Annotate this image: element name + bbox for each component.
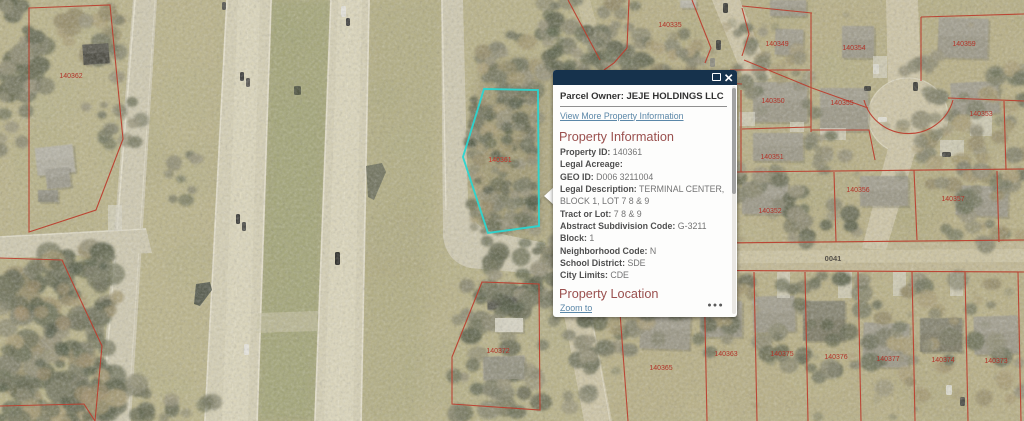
svg-text:140361: 140361: [488, 157, 511, 164]
svg-text:140362: 140362: [59, 73, 82, 80]
svg-text:140351: 140351: [760, 154, 783, 161]
svg-text:140372: 140372: [486, 348, 509, 355]
svg-text:140375: 140375: [770, 351, 793, 358]
svg-text:140356: 140356: [846, 187, 869, 194]
svg-text:140355: 140355: [830, 100, 853, 107]
svg-text:0041: 0041: [825, 254, 842, 263]
svg-text:140350: 140350: [761, 98, 784, 105]
svg-text:140335: 140335: [658, 22, 681, 29]
svg-text:140374: 140374: [931, 357, 954, 364]
svg-text:140357: 140357: [941, 196, 964, 203]
svg-text:140349: 140349: [765, 41, 788, 48]
svg-text:140365: 140365: [649, 365, 672, 372]
svg-text:140363: 140363: [714, 351, 737, 358]
svg-text:140377: 140377: [876, 356, 899, 363]
svg-text:140373: 140373: [984, 358, 1007, 365]
svg-text:140352: 140352: [758, 208, 781, 215]
svg-text:140354: 140354: [842, 45, 865, 52]
svg-text:140376: 140376: [824, 354, 847, 361]
svg-text:140353: 140353: [969, 111, 992, 118]
svg-text:140359: 140359: [952, 41, 975, 48]
